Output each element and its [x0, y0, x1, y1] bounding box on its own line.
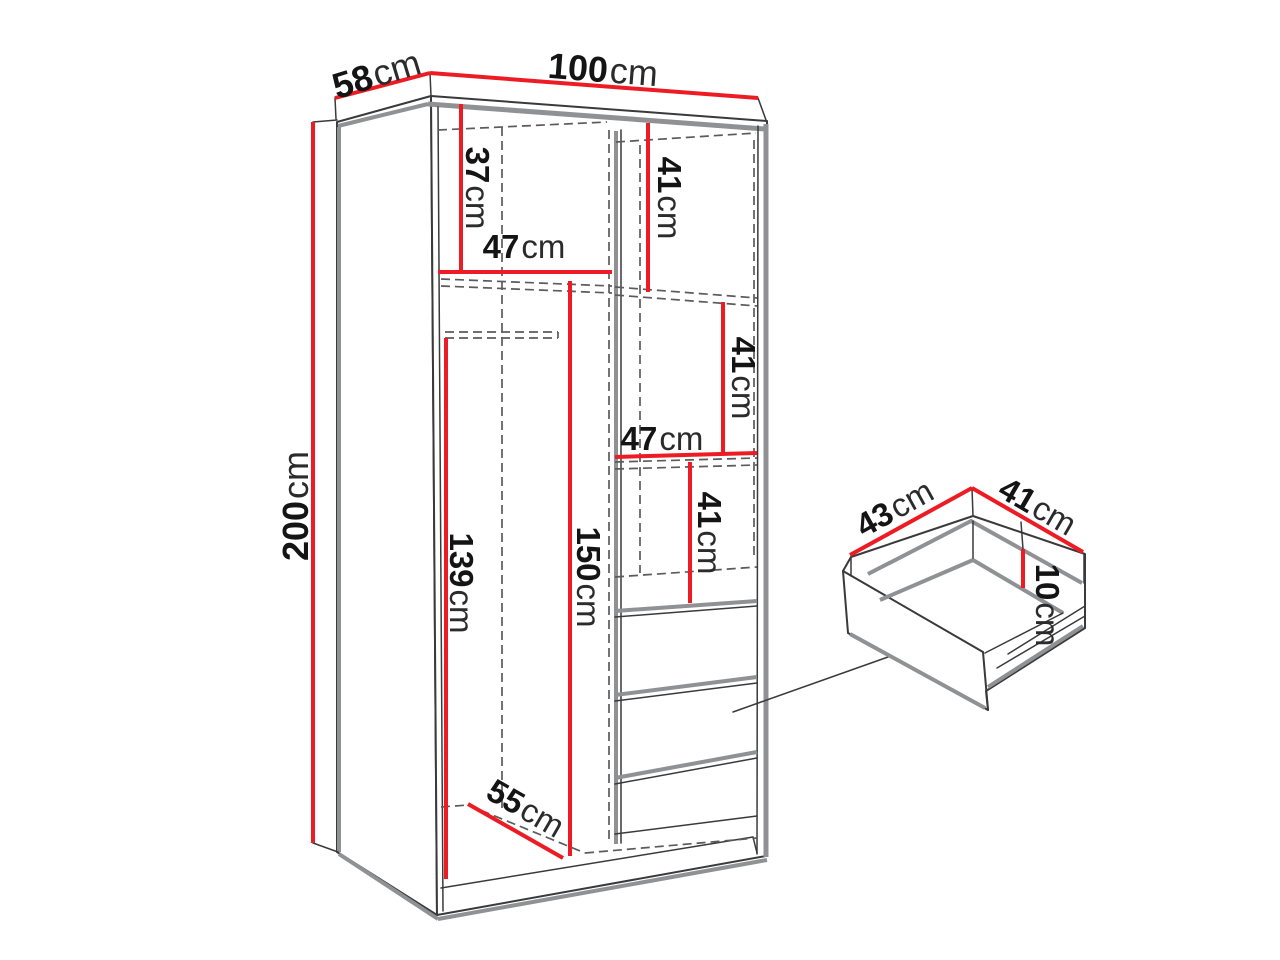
- dim-label-depth-58: 58cm: [327, 41, 425, 107]
- dim-label-height-200: 200cm: [275, 451, 316, 561]
- wardrobe-dimension-diagram: 58cm 100cm 200cm 37cm 47cm 41cm 41cm 47c…: [0, 0, 1280, 960]
- dim-label-37: 37cm: [459, 147, 496, 230]
- dim-label-41-mid: 41cm: [725, 337, 762, 420]
- wardrobe-dimension-diagram-page: 58cm 100cm 200cm 37cm 47cm 41cm 41cm 47c…: [0, 0, 1280, 960]
- dim-label-139: 139cm: [443, 532, 480, 633]
- dim-label-47-right: 47cm: [621, 420, 704, 457]
- dim-label-41-top: 41cm: [651, 157, 688, 240]
- wardrobe-side-face: [337, 96, 437, 915]
- dim-label-41-low: 41cm: [691, 492, 728, 575]
- dim-label-drawer-height-10: 10cm: [1029, 564, 1066, 647]
- dim-label-150: 150cm: [570, 526, 607, 627]
- dim-label-width-100: 100cm: [547, 45, 660, 94]
- dim-label-47-left: 47cm: [483, 228, 566, 265]
